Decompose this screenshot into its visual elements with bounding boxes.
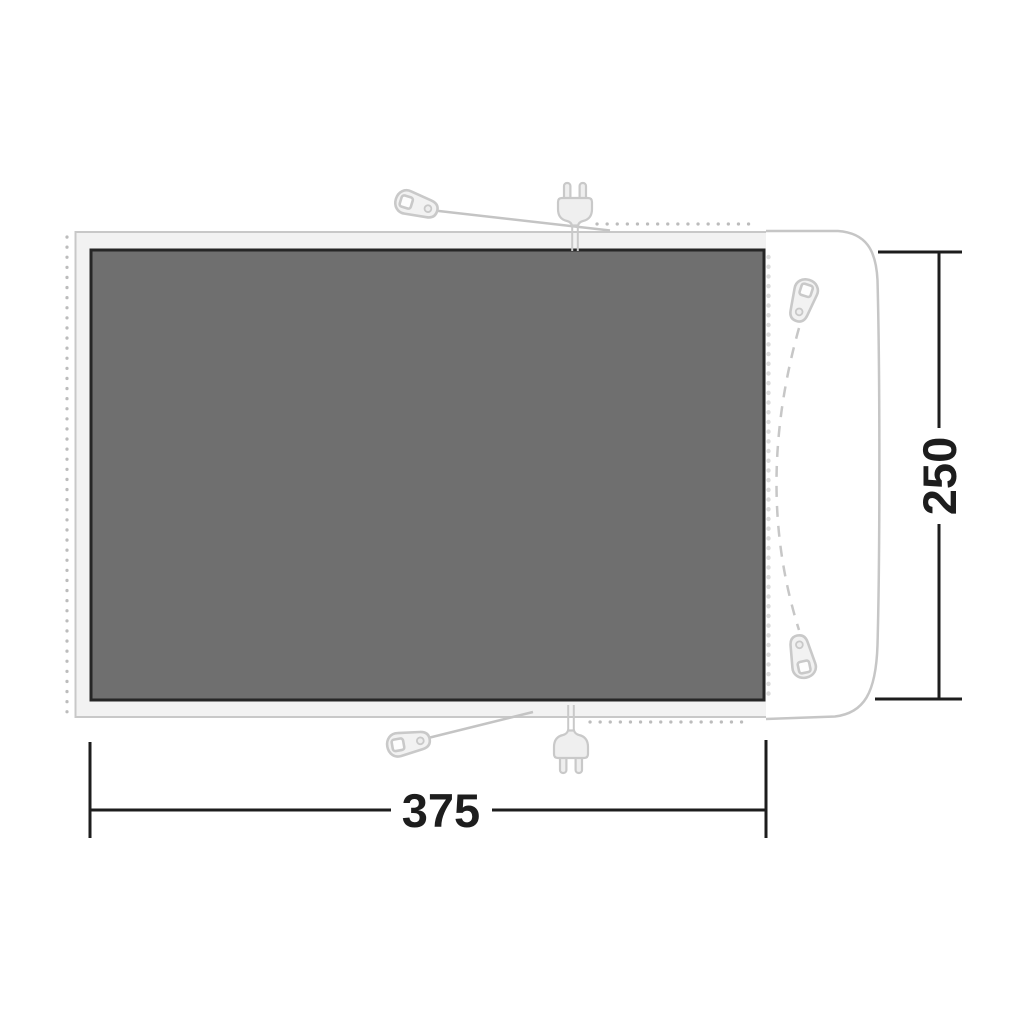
groundsheet-mat bbox=[91, 250, 764, 700]
diagram-canvas: 375 250 bbox=[0, 0, 1024, 1024]
depth-dimension-label: 250 bbox=[913, 437, 966, 515]
peg-icon-top bbox=[392, 188, 440, 223]
floorplan-diagram: 375 250 bbox=[0, 0, 1024, 1024]
depth-dimension: 250 bbox=[875, 252, 966, 699]
peg-icon-bottom bbox=[385, 728, 431, 759]
width-dimension: 375 bbox=[90, 740, 766, 838]
width-dimension-label: 375 bbox=[402, 784, 480, 837]
cabin-outline bbox=[766, 231, 879, 719]
